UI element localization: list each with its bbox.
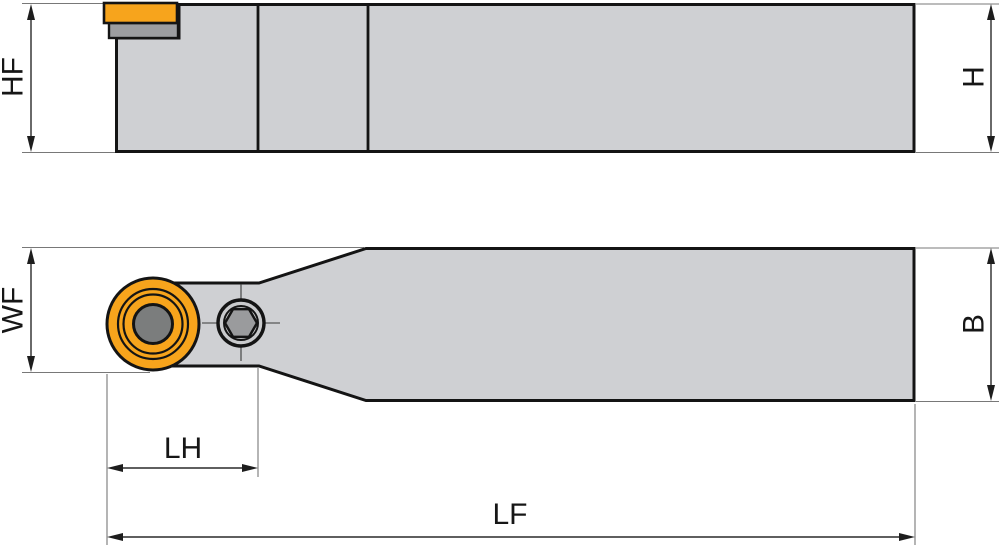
- lh-arrow-right: [242, 464, 258, 472]
- toolholder-dimension-diagram: HF H WF: [0, 0, 1000, 549]
- insert-clamp-hole: [134, 305, 173, 344]
- hf-arrow-down: [27, 136, 35, 152]
- b-arrow-down: [987, 385, 995, 401]
- h-arrow-down: [987, 136, 995, 152]
- b-dimension-label: B: [958, 314, 991, 334]
- hf-arrow-up: [27, 4, 35, 20]
- hex-socket: [225, 309, 257, 337]
- side-view-body: [117, 5, 915, 152]
- lf-arrow-left: [107, 533, 123, 541]
- lf-dimension-label: LF: [492, 498, 527, 531]
- lh-dimension-label: LH: [164, 432, 202, 465]
- h-arrow-up: [987, 4, 995, 20]
- lf-arrow-right: [899, 533, 915, 541]
- insert-shim: [109, 23, 178, 38]
- b-arrow-up: [987, 248, 995, 264]
- side-view: HF H: [0, 3, 999, 153]
- h-dimension-label: H: [958, 66, 991, 88]
- wf-arrow-up: [27, 248, 35, 264]
- insert-side-profile: [104, 3, 177, 23]
- wf-dimension-label: WF: [0, 287, 30, 334]
- lh-arrow-left: [107, 464, 123, 472]
- plan-view: WF B LH LF: [0, 248, 999, 546]
- hf-dimension-label: HF: [0, 57, 30, 97]
- wf-arrow-down: [27, 356, 35, 372]
